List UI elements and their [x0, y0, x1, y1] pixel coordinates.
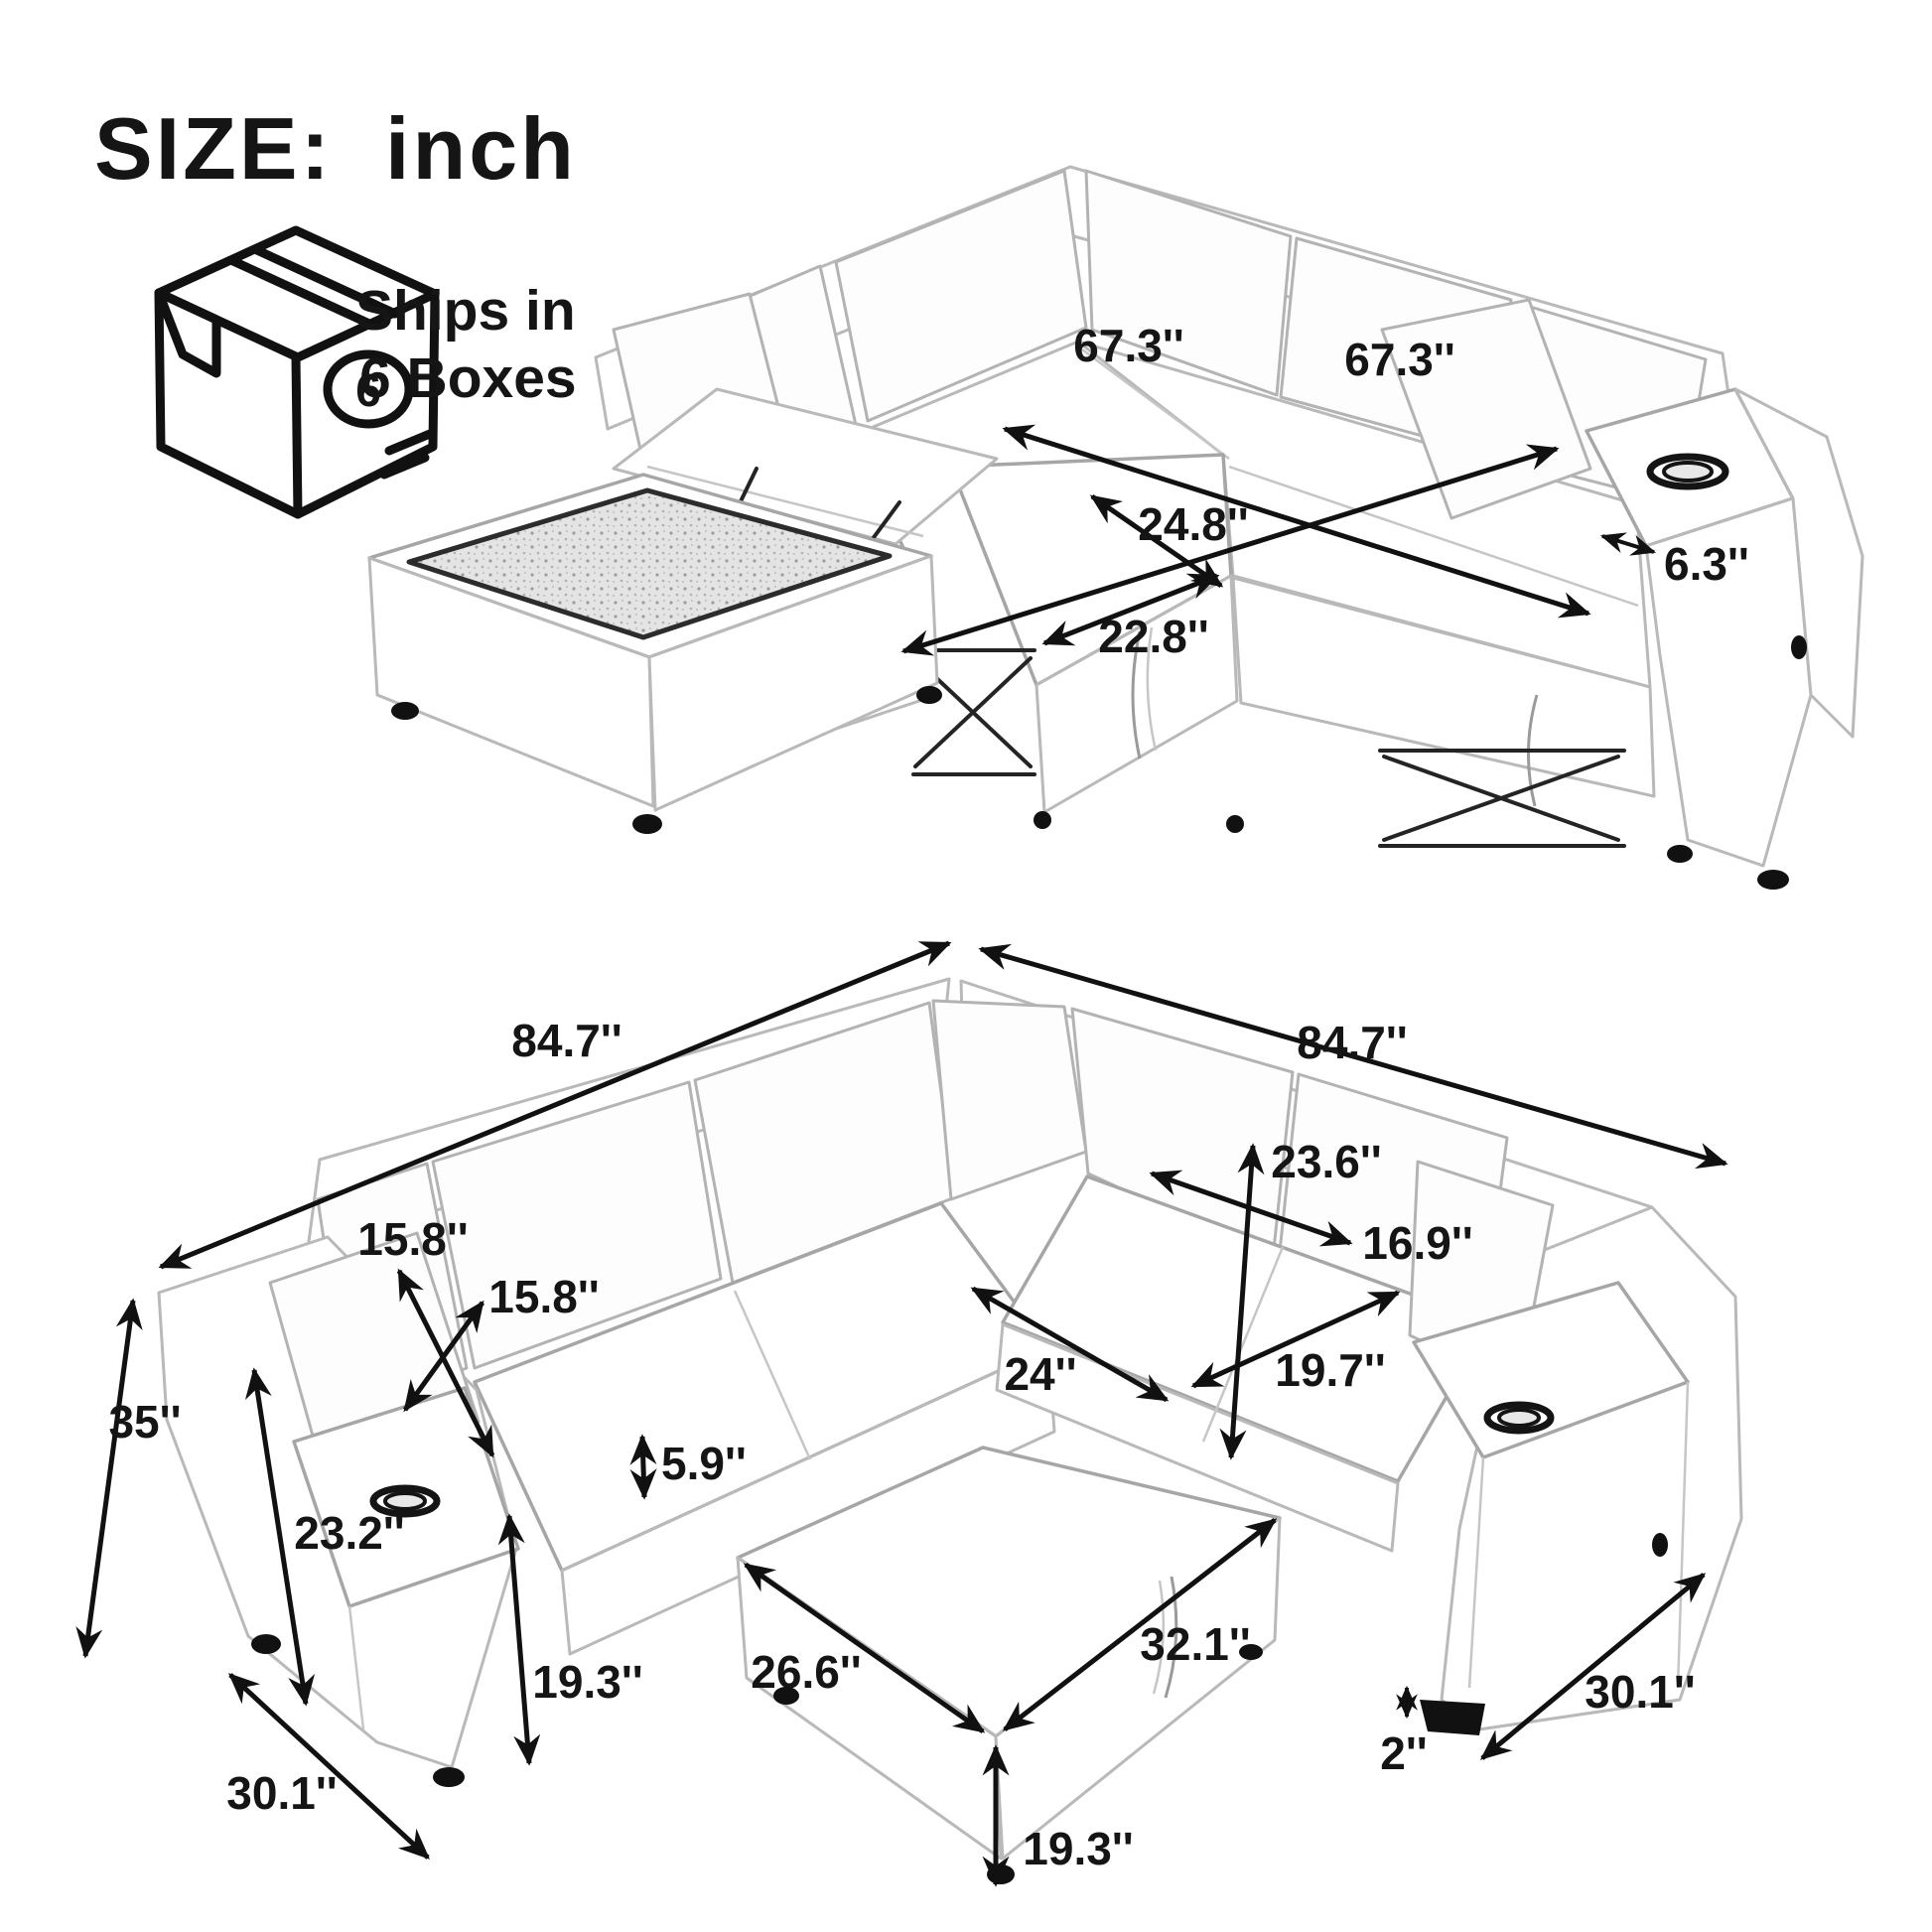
dim-label-overall-width-right: 84.7'': [1297, 1017, 1407, 1068]
usb-port-icon: [1791, 635, 1807, 659]
dim-label-arm-height: 23.2'': [294, 1507, 404, 1559]
dim-arrow-seat-height: [509, 1516, 529, 1763]
corner-cushion: [933, 1001, 1086, 1199]
dim-label-seat-width: 24'': [1004, 1348, 1076, 1400]
dim-label-base-depth-left: 30.1'': [226, 1767, 337, 1819]
dim-label-overall-height: 35'': [108, 1396, 181, 1448]
header: SIZE: inch: [94, 99, 577, 198]
open-storage-chaise-shape: [391, 702, 419, 720]
dim-label-bed-length-left: 67.3'': [1073, 320, 1183, 371]
dim-label-seat-depth: 19.7'': [1275, 1344, 1385, 1396]
dim-label-seat-height: 19.3'': [532, 1656, 642, 1708]
right-arm-top-figure-shape: [1664, 463, 1712, 481]
dim-label-armrest-width: 6.3'': [1664, 538, 1749, 590]
top-figure-sleeper-shape: [1034, 811, 1051, 829]
dim-label-back-cushion-width: 15.8'': [488, 1271, 599, 1322]
dim-label-right-back-cushion-height: 23.6'': [1271, 1136, 1381, 1187]
left-arm-bottom-figure-shape: [433, 1767, 465, 1787]
size-label: SIZE:: [94, 99, 333, 198]
top-figure-sleeper-shape: [1226, 815, 1244, 833]
ships-in-line2: 6 Boxes: [359, 346, 577, 410]
dim-label-right-back-cushion-width: 16.9'': [1362, 1217, 1472, 1269]
top-figure-sleeper: 67.3'' 67.3'' 24.8'' 22.8'' 6.3'': [369, 167, 1863, 890]
unit-label: inch: [385, 99, 577, 198]
dim-label-back-cushion-height: 15.8'': [357, 1213, 468, 1265]
dim-label-cushion-thickness: 5.9'': [661, 1438, 747, 1489]
dim-label-ottoman-height: 19.3'': [1023, 1823, 1133, 1874]
shipping-box-icon-shape: [159, 293, 216, 373]
dim-label-pullout-width: 22.8'': [1098, 611, 1208, 662]
dim-label-overall-width-left: 84.7'': [511, 1015, 621, 1066]
shipping-box-icon-shape: [384, 434, 430, 475]
dim-label-pullout-depth: 24.8'': [1138, 498, 1248, 550]
left-arm-bottom-figure-shape: [251, 1634, 281, 1654]
shipping-text: Ships in 6 Boxes: [355, 279, 577, 410]
dim-label-base-depth-right: 30.1'': [1585, 1666, 1695, 1718]
sofa-dimension-diagram: SIZE: inch 6 Ships in 6 Boxes: [0, 0, 1932, 1932]
dim-label-ottoman-length: 32.1'': [1140, 1618, 1250, 1670]
ships-in-line1: Ships in: [355, 279, 576, 343]
dim-arrow-cushion-thickness: [642, 1437, 644, 1497]
dim-label-leg-height: 2'': [1380, 1727, 1427, 1779]
dim-arrow-overall-height: [85, 1301, 133, 1656]
open-storage-chaise-shape: [632, 814, 662, 834]
right-arm-bottom-figure-shape: [1499, 1410, 1539, 1426]
storage-ottoman-shape: [987, 1864, 1015, 1884]
bottom-figure-sofa: 84.7'' 84.7'' 35'' 23.2'' 15.8'' 15.8'' …: [85, 943, 1741, 1884]
usb-port-icon: [1652, 1533, 1668, 1557]
right-arm-top-figure-shape: [1667, 845, 1693, 863]
open-storage-chaise: [369, 389, 997, 834]
dim-label-bed-length-right: 67.3'': [1344, 334, 1454, 385]
right-arm-top-figure-shape: [1757, 870, 1789, 890]
open-storage-chaise-shape: [916, 686, 942, 704]
dim-label-ottoman-width: 26.6'': [751, 1646, 861, 1698]
arm-foot: [1420, 1700, 1485, 1735]
dimension-diagram-page: SIZE: inch 6 Ships in 6 Boxes: [0, 0, 1932, 1932]
